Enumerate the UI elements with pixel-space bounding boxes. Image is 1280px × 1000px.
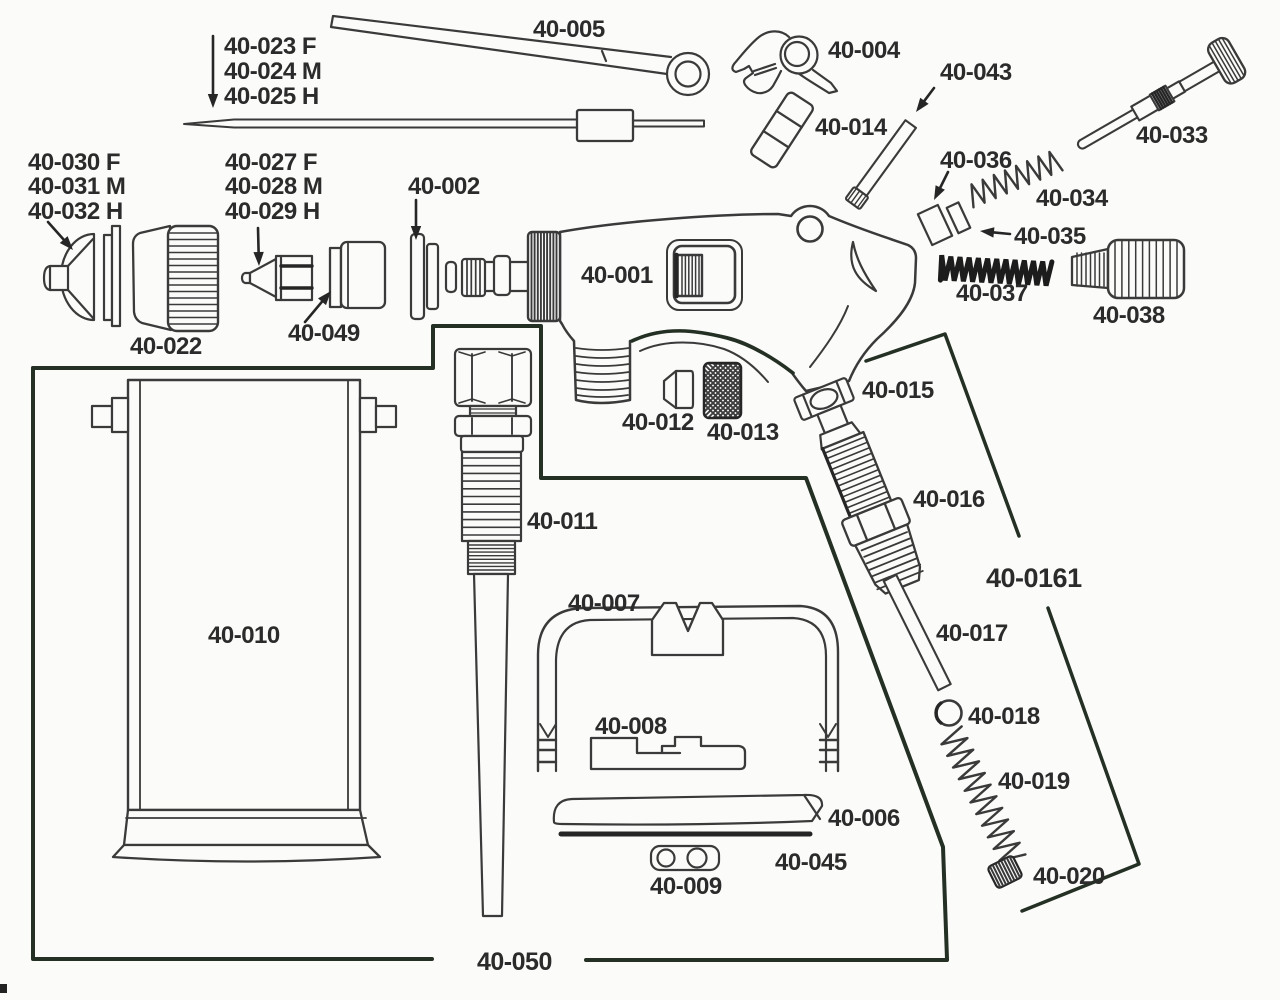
- svg-text:40-038: 40-038: [1093, 302, 1165, 329]
- svg-text:40-049: 40-049: [288, 320, 360, 347]
- svg-text:40-050: 40-050: [477, 948, 552, 976]
- svg-text:40-024 M: 40-024 M: [224, 58, 321, 85]
- svg-text:40-008: 40-008: [595, 713, 667, 740]
- svg-text:40-036: 40-036: [940, 147, 1012, 174]
- svg-text:40-013: 40-013: [707, 419, 779, 446]
- svg-text:40-014: 40-014: [815, 114, 888, 141]
- svg-text:40-031 M: 40-031 M: [28, 173, 125, 200]
- svg-text:40-007: 40-007: [568, 590, 640, 617]
- svg-text:40-011: 40-011: [527, 508, 598, 535]
- svg-text:40-012: 40-012: [622, 409, 694, 436]
- svg-text:40-020: 40-020: [1033, 863, 1105, 890]
- svg-text:40-034: 40-034: [1036, 185, 1109, 212]
- svg-text:40-025 H: 40-025 H: [224, 83, 319, 110]
- svg-text:40-005: 40-005: [533, 16, 605, 43]
- svg-text:40-043: 40-043: [940, 59, 1012, 86]
- svg-text:40-028 M: 40-028 M: [225, 173, 322, 200]
- svg-text:40-033: 40-033: [1136, 122, 1208, 149]
- svg-text:40-002: 40-002: [408, 173, 480, 200]
- svg-text:40-0161: 40-0161: [986, 563, 1082, 593]
- svg-text:40-022: 40-022: [130, 333, 202, 360]
- svg-text:40-015: 40-015: [862, 377, 934, 404]
- svg-text:40-029 H: 40-029 H: [225, 198, 320, 225]
- svg-text:40-045: 40-045: [775, 849, 847, 876]
- svg-text:40-006: 40-006: [828, 805, 900, 832]
- svg-text:40-018: 40-018: [968, 703, 1040, 730]
- svg-text:40-030 F: 40-030 F: [28, 149, 120, 176]
- svg-text:40-010: 40-010: [208, 622, 280, 649]
- svg-text:40-035: 40-035: [1014, 223, 1086, 250]
- svg-text:40-037: 40-037: [956, 280, 1028, 307]
- svg-text:40-004: 40-004: [828, 37, 901, 64]
- svg-text:40-009: 40-009: [650, 873, 722, 900]
- svg-text:40-023 F: 40-023 F: [224, 33, 316, 60]
- svg-text:40-027 F: 40-027 F: [225, 149, 317, 176]
- svg-text:40-019: 40-019: [998, 768, 1070, 795]
- svg-text:40-017: 40-017: [936, 620, 1008, 647]
- svg-text:40-016: 40-016: [913, 486, 985, 513]
- svg-text:40-032 H: 40-032 H: [28, 198, 123, 225]
- svg-text:40-001: 40-001: [581, 262, 653, 289]
